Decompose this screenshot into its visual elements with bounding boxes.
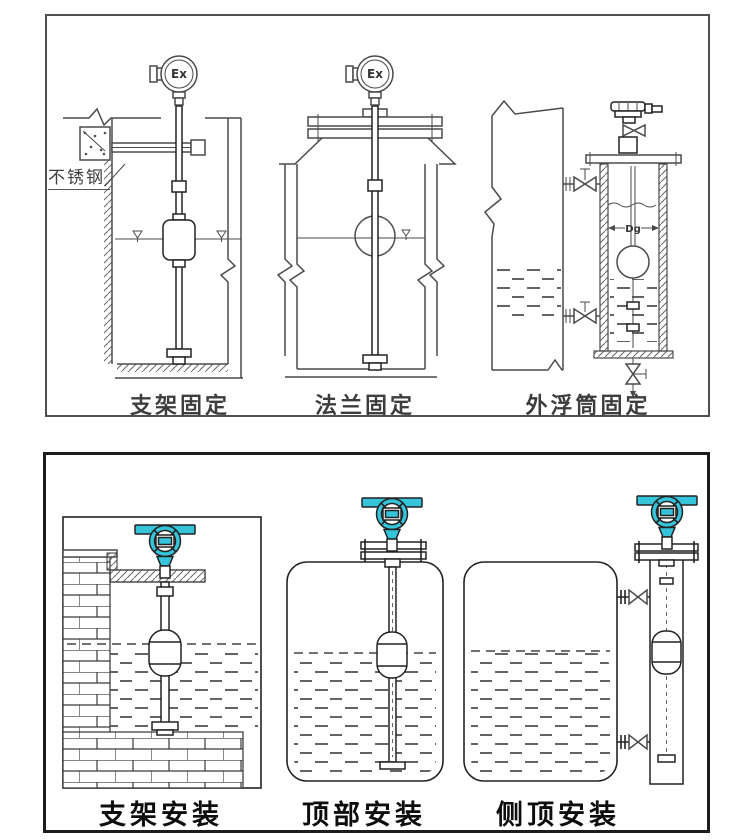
flange — [361, 542, 426, 549]
caption-bracket-install: 支架安装 — [81, 793, 241, 832]
float-capsule-icon — [377, 632, 407, 678]
bracket-plate — [80, 127, 110, 160]
chamber-liquid — [610, 279, 657, 342]
float-capsule-icon — [149, 630, 181, 676]
float-capsule-icon — [652, 631, 681, 674]
figure-flange-fixed — [278, 56, 455, 377]
stem — [176, 106, 182, 349]
figure-top-install — [287, 498, 443, 781]
stem — [372, 106, 378, 355]
float-ball-icon — [617, 246, 649, 278]
tank-liquid — [495, 262, 561, 320]
bolt-dots — [84, 132, 107, 156]
fixing-methods-panel: Dg — [45, 14, 710, 417]
level-mark-icon — [402, 230, 410, 240]
chamber-flange — [586, 155, 681, 163]
flange — [308, 117, 442, 126]
chamber — [650, 557, 683, 784]
figure-bracket-install — [63, 517, 261, 788]
figure-external-chamber-fixed: Dg — [485, 101, 681, 398]
tank — [464, 562, 617, 781]
pipe-union-icon — [617, 590, 650, 604]
caption-top-install: 顶部安装 — [284, 793, 444, 832]
liquid — [110, 646, 258, 732]
float-icon — [163, 220, 195, 260]
bracket-slab — [110, 570, 205, 582]
flange — [635, 544, 698, 551]
figure-bracket-fixed — [63, 56, 243, 378]
brick-wall — [63, 557, 110, 788]
caption-side-top-install: 侧顶安装 — [478, 793, 638, 832]
figure-side-top-install — [464, 496, 698, 784]
liquid — [471, 653, 610, 775]
caption-bracket-fixed: 支架固定 — [100, 388, 260, 420]
dimension-arrows-icon — [608, 225, 659, 231]
material-annotation: 不锈钢 — [48, 163, 110, 190]
caption-flange-fixed: 法兰固定 — [285, 388, 445, 420]
liquid — [294, 655, 436, 775]
dimension-label: Dg — [625, 224, 640, 235]
pipe-union-icon — [617, 735, 650, 749]
valve-icon — [563, 169, 600, 191]
union-icon — [623, 125, 645, 136]
float-ball-icon — [355, 216, 395, 256]
stem — [389, 567, 396, 762]
terminal-head-icon — [611, 102, 645, 111]
level-mark-icon — [133, 231, 142, 242]
brick-floor — [63, 732, 243, 788]
installation-methods-panel: 支架安装 顶部安装 侧顶安装 — [43, 452, 710, 833]
stem — [161, 582, 169, 724]
tank — [287, 562, 443, 781]
installation-diagram-sheet: Ex — [0, 0, 750, 840]
bracket-arm — [112, 143, 191, 152]
valve-icon — [563, 302, 600, 323]
caption-external-chamber-fixed: 外浮筒固定 — [498, 388, 678, 420]
level-mark-icon — [217, 231, 226, 242]
